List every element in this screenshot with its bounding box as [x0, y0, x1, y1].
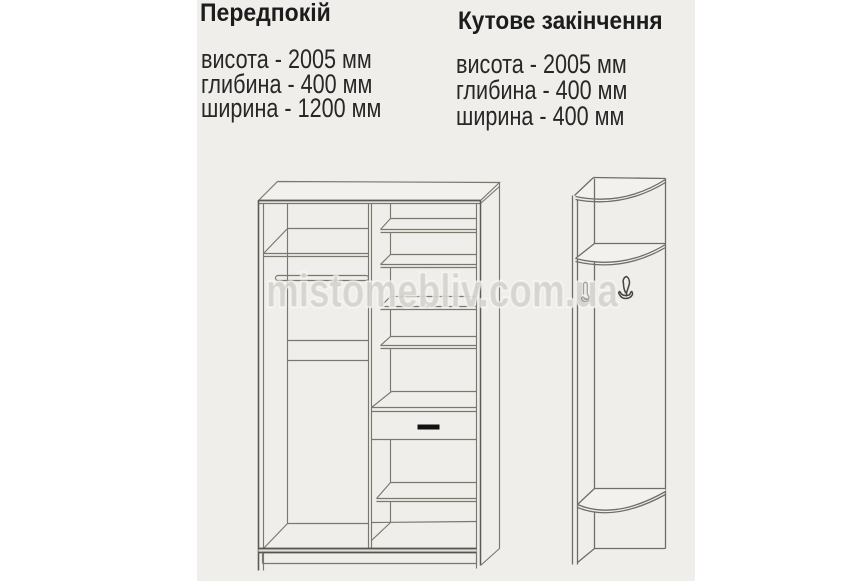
svg-text:mistomebliv.com.ua: mistomebliv.com.ua	[266, 265, 618, 317]
